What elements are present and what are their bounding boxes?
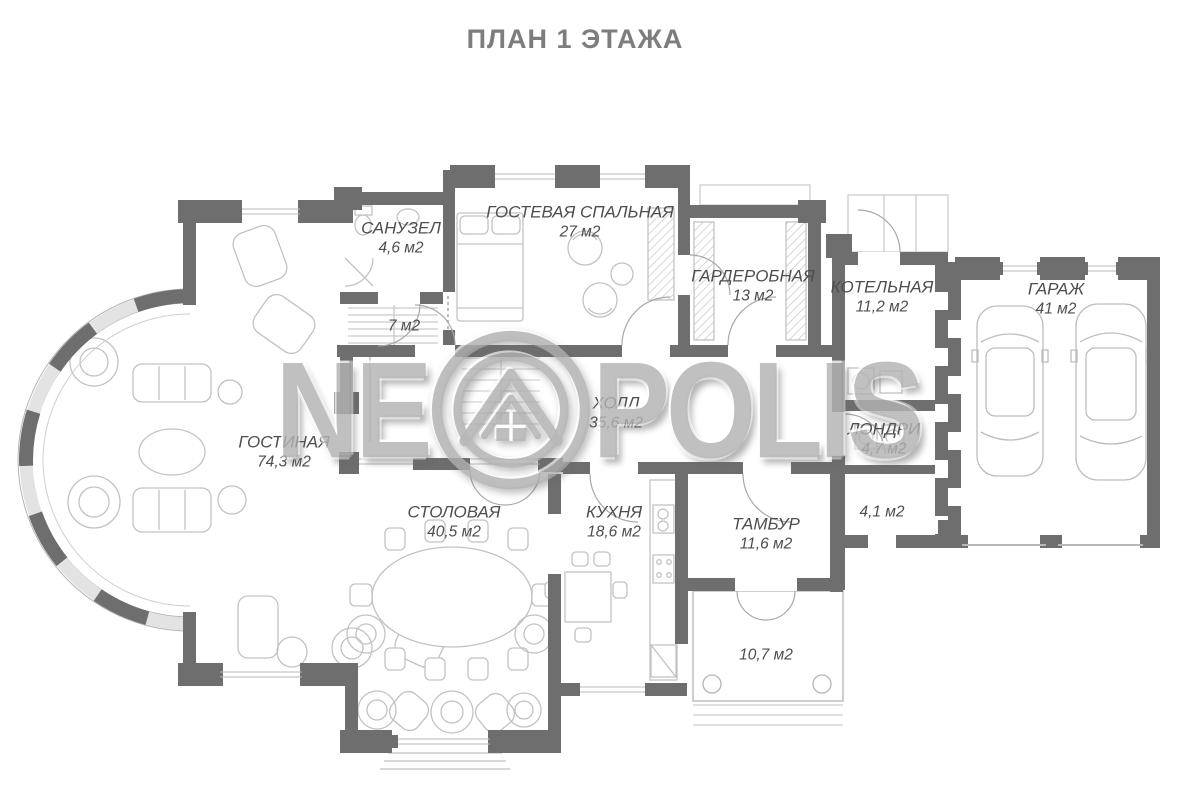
room-name: ГАРДЕРОБНАЯ [691,266,814,287]
room-label-tambour: ТАМБУР 11,6 м2 [732,514,800,555]
dining-steps [380,753,510,769]
room-label-boiler: КОТЕЛЬНАЯ 11,2 м2 [831,277,934,318]
room-name: СТОЛОВАЯ [408,502,501,523]
room-area: 4,6 м2 [361,239,441,258]
room-name: ХОЛЛ [589,393,643,414]
boiler-equipment [848,368,902,394]
room-area: 74,3 м2 [238,453,329,472]
room-area: 7 м2 [388,316,420,335]
room-area: 18,6 м2 [586,523,642,542]
dining-room-furniture [347,520,554,737]
room-label-guestroom: ГОСТЕВАЯ СПАЛЬНАЯ 27 м2 [486,202,674,243]
room-label-laundry: ЛОНДРИ 4,7 м2 [848,419,921,460]
room-label-sanuzel: САНУЗЕЛ 4,6 м2 [361,218,441,259]
room-label-living: ГОСТИНАЯ 74,3 м2 [238,432,329,473]
room-area: 27 м2 [486,223,674,242]
room-area: 41 м2 [1028,300,1084,319]
room-label-garage: ГАРАЖ 41 м2 [1028,279,1084,320]
room-label-dining: СТОЛОВАЯ 40,5 м2 [408,502,501,543]
floorplan-page: ПЛАН 1 ЭТАЖА [0,0,1200,800]
car-icon [972,306,1048,476]
room-name: КОТЕЛЬНАЯ [831,277,934,298]
page-title: ПЛАН 1 ЭТАЖА [0,24,1150,55]
room-label-hall: ХОЛЛ 35,6 м2 [589,393,643,434]
car-icon [1071,304,1152,480]
room-area: 11,2 м2 [831,298,934,317]
room-area: 35,6 м2 [589,414,643,433]
room-area: 13 м2 [691,287,814,306]
room-name: САНУЗЕЛ [361,218,441,239]
hall-stairs [462,358,540,424]
room-name: ГОСТЕВАЯ СПАЛЬНАЯ [486,202,674,223]
room-label-corridor41: 4,1 м2 [859,502,904,521]
room-area: 4,1 м2 [859,502,904,521]
room-label-wardrobe: ГАРДЕРОБНАЯ 13 м2 [691,266,814,307]
room-area: 10,7 м2 [739,645,793,664]
room-area: 40,5 м2 [408,523,501,542]
room-label-room7: 7 м2 [388,316,420,335]
room-label-porch: 10,7 м2 [739,645,793,664]
room-area: 4,7 м2 [848,440,921,459]
room-area: 11,6 м2 [732,535,800,554]
room-name: ГОСТИНАЯ [238,432,329,453]
room-name: КУХНЯ [586,502,642,523]
room-name: ЛОНДРИ [848,419,921,440]
room-name: ГАРАЖ [1028,279,1084,300]
room-label-kitchen: КУХНЯ 18,6 м2 [586,502,642,543]
room-name: ТАМБУР [732,514,800,535]
